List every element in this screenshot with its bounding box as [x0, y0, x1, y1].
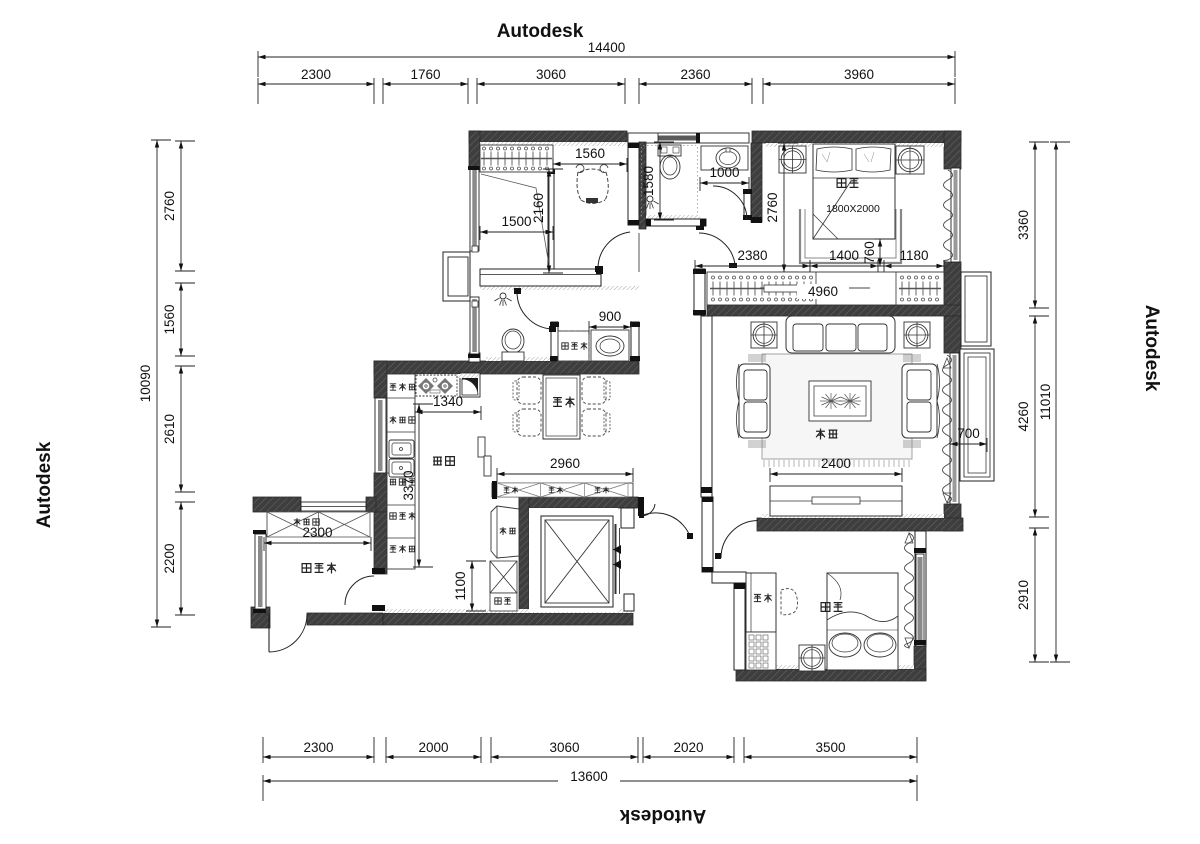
svg-text:4960: 4960 — [808, 284, 838, 299]
svg-text:2910: 2910 — [1016, 580, 1031, 610]
svg-text:1180: 1180 — [899, 248, 928, 263]
svg-text:11010: 11010 — [1038, 384, 1053, 421]
svg-text:Autodesk: Autodesk — [619, 805, 706, 826]
svg-text:3060: 3060 — [549, 740, 579, 755]
svg-text:1500: 1500 — [501, 214, 531, 229]
svg-text:2760: 2760 — [765, 192, 780, 222]
svg-text:2020: 2020 — [673, 740, 703, 755]
svg-text:2400: 2400 — [821, 456, 851, 471]
svg-text:Autodesk: Autodesk — [34, 441, 55, 528]
svg-text:2300: 2300 — [301, 67, 331, 82]
svg-text:14400: 14400 — [588, 40, 626, 55]
svg-text:1000: 1000 — [709, 165, 739, 180]
svg-text:13600: 13600 — [570, 769, 608, 784]
svg-text:2200: 2200 — [162, 543, 177, 573]
svg-text:1400: 1400 — [829, 248, 859, 263]
svg-text:1560: 1560 — [162, 304, 177, 334]
svg-text:3060: 3060 — [536, 67, 566, 82]
svg-text:2300: 2300 — [303, 740, 333, 755]
svg-text:1340: 1340 — [433, 394, 463, 409]
svg-text:3960: 3960 — [844, 67, 874, 82]
svg-text:760: 760 — [862, 241, 877, 264]
svg-text:1580: 1580 — [641, 166, 656, 196]
svg-text:Autodesk: Autodesk — [1141, 305, 1162, 392]
svg-text:4260: 4260 — [1016, 401, 1031, 431]
svg-text:3370: 3370 — [401, 470, 416, 500]
svg-text:900: 900 — [599, 309, 622, 324]
svg-text:Autodesk: Autodesk — [497, 21, 584, 42]
svg-text:2960: 2960 — [550, 456, 580, 471]
svg-text:700: 700 — [957, 426, 980, 441]
svg-text:2000: 2000 — [418, 740, 448, 755]
svg-text:2380: 2380 — [737, 248, 767, 263]
svg-text:3500: 3500 — [815, 740, 845, 755]
svg-text:1800X2000: 1800X2000 — [826, 203, 880, 215]
svg-text:2160: 2160 — [531, 193, 546, 223]
svg-text:2610: 2610 — [162, 414, 177, 444]
svg-text:2760: 2760 — [162, 191, 177, 221]
svg-text:1100: 1100 — [453, 571, 468, 600]
svg-text:1560: 1560 — [575, 146, 605, 161]
svg-text:10090: 10090 — [138, 365, 153, 403]
svg-text:1760: 1760 — [410, 67, 440, 82]
svg-text:2300: 2300 — [302, 525, 332, 540]
svg-text:2360: 2360 — [680, 67, 710, 82]
svg-text:3360: 3360 — [1016, 210, 1031, 240]
